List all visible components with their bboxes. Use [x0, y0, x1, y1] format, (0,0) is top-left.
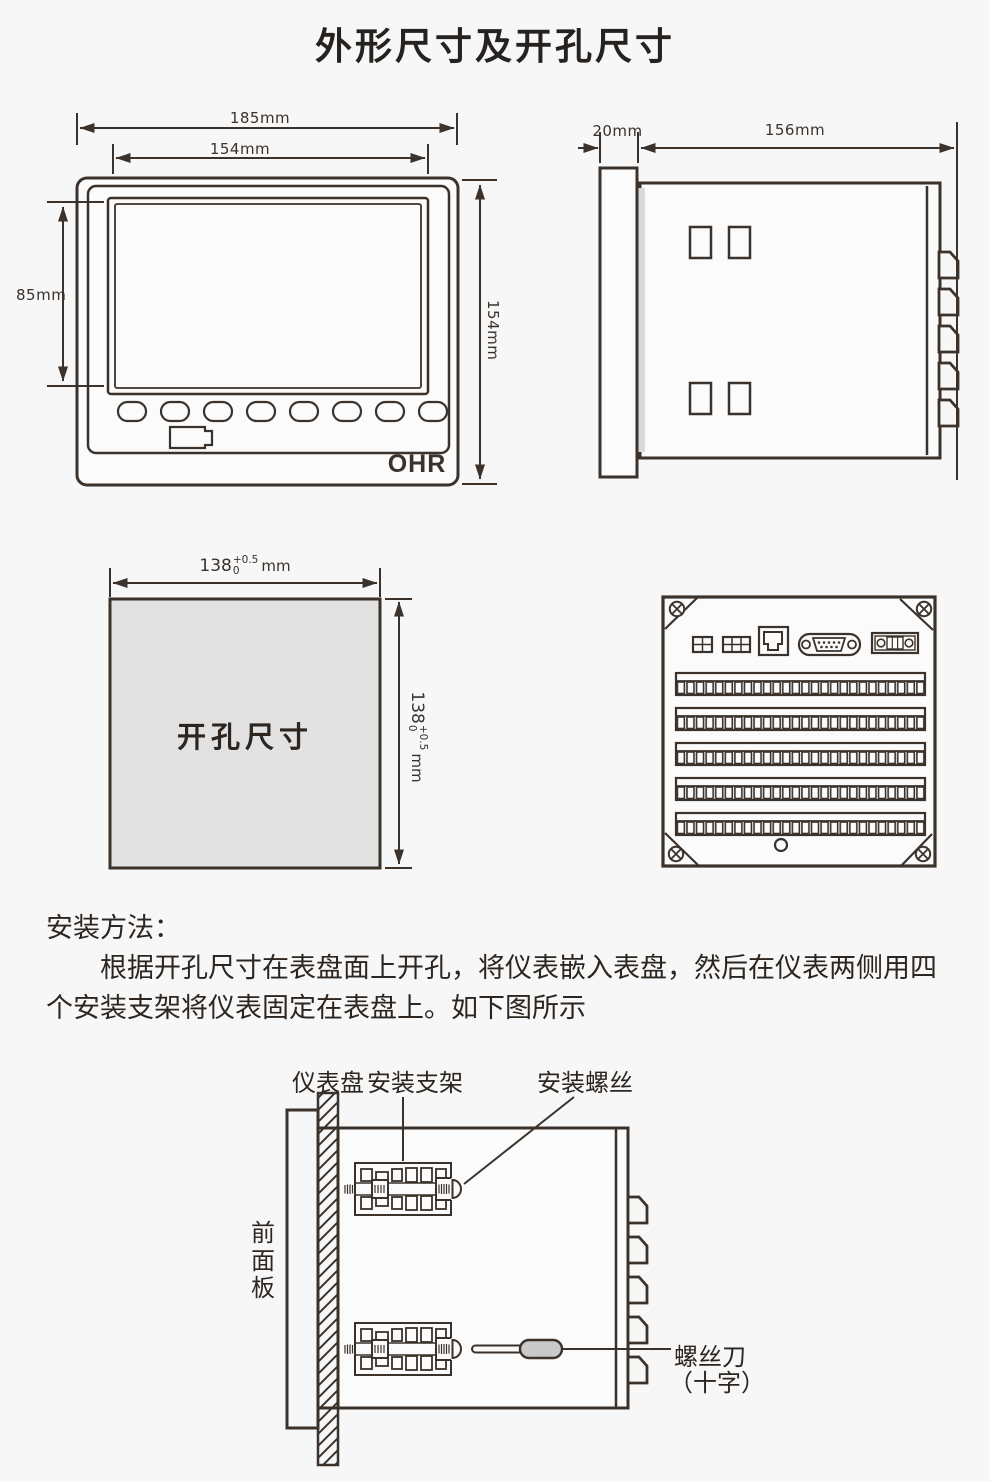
db9-connector [799, 634, 860, 655]
side-terminal-bumps [939, 252, 958, 426]
dim-185mm-label: 185mm [190, 109, 330, 127]
install-terminal-bumps [628, 1197, 647, 1383]
mount-bracket-bottom [345, 1323, 461, 1375]
front-panel-label: 前面板 [251, 1221, 279, 1304]
screwdriver-type-label: （十字） [669, 1363, 765, 1398]
install-text-line1: 根据开孔尺寸在表盘面上开孔，将仪表嵌入表盘，然后在仪表两侧用四 [100, 946, 937, 985]
cutout-width-dim-label: 138+0.50mm [175, 555, 315, 577]
panel-label: 仪表盘 [292, 1063, 364, 1098]
usb-port [170, 427, 212, 448]
manual-page: 外形尺寸及开孔尺寸 185mm 154mm 85mm 154mm 20mm 15… [0, 0, 990, 1481]
dim-154mm-top-label: 154mm [185, 140, 295, 158]
install-drawing [287, 1093, 671, 1465]
bracket-label: 安装支架 [367, 1063, 463, 1098]
screw-label: 安装螺丝 [537, 1063, 633, 1098]
rear-view-drawing [663, 597, 935, 866]
cutout-label: 开孔尺寸 [145, 714, 345, 756]
page-title: 外形尺寸及开孔尺寸 [0, 16, 990, 70]
power-terminal-block [872, 633, 918, 653]
connector-small-3x2 [723, 637, 750, 652]
ethernet-jack [759, 627, 788, 655]
side-view-drawing [600, 168, 958, 477]
install-text-line2: 个安装支架将仪表固定在表盘上。如下图所示 [46, 986, 586, 1025]
side-bezel [600, 168, 637, 477]
dim-154mm-right-label: 154mm [484, 300, 502, 360]
dim-20mm-label: 20mm [585, 122, 650, 140]
connector-small-2x2 [693, 637, 712, 652]
brand-logo: OHR [385, 450, 449, 479]
front-panel-side [287, 1110, 318, 1428]
install-heading: 安装方法： [46, 906, 181, 945]
front-view-drawing [77, 178, 458, 485]
cutout-height-dim-label: 138+0.50mm [404, 682, 430, 792]
dim-156mm-label: 156mm [740, 121, 850, 139]
dim-85mm-label: 85mm [16, 286, 66, 304]
mount-bracket-top [345, 1163, 461, 1215]
screen [108, 198, 428, 394]
